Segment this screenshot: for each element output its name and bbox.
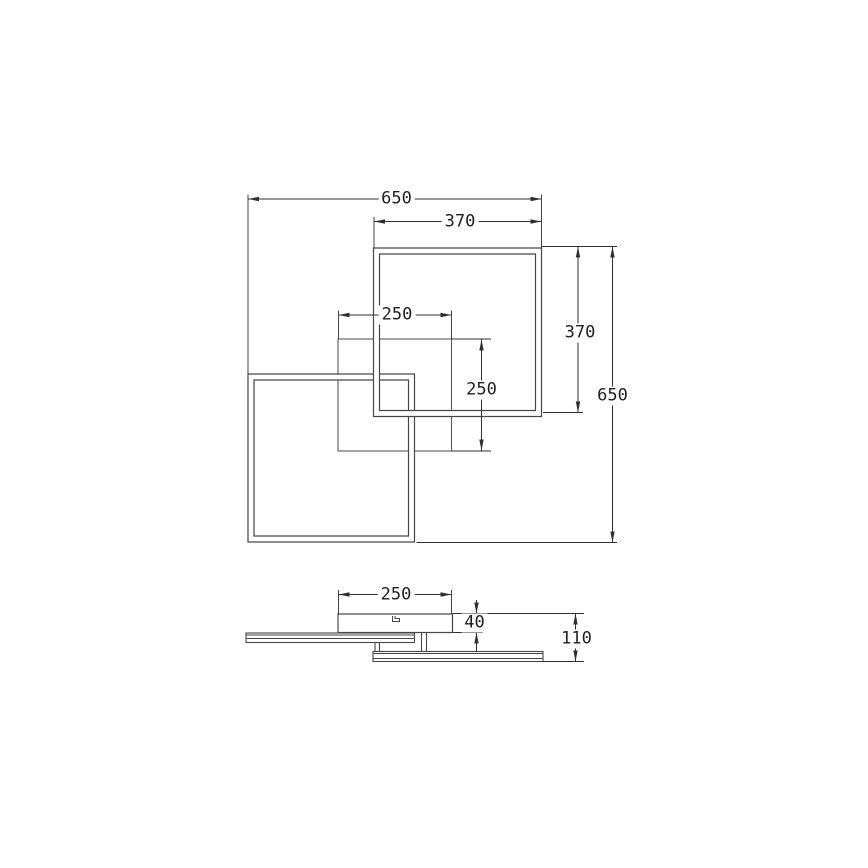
dim-arrow-overall-width: [531, 197, 542, 201]
dim-arrow-canopy-width: [441, 313, 452, 317]
dim-arrow-upper-frame-width: [531, 219, 542, 223]
dim-arrow-upper-frame-depth: [576, 402, 580, 413]
dim-arrow-canopy-depth: [479, 340, 483, 351]
dim-arrow-overall-width: [248, 197, 259, 201]
dim-arrow-upper-frame-depth: [576, 247, 580, 258]
dim-arrow-overall-height: [573, 651, 577, 662]
dim-arrow-canopy-height: [474, 633, 478, 644]
left-frame-profile: [246, 633, 415, 643]
dim-arrow-canopy-width: [339, 313, 350, 317]
dim-arrow-overall-depth: [610, 247, 614, 258]
canopy-outline-250: [338, 339, 452, 451]
technical-drawing-canvas: 650 370 250 250 370 650 250 40 110: [0, 0, 868, 868]
dim-label-upper-frame-width: 370: [442, 212, 479, 231]
dim-label-canopy-depth: 250: [463, 380, 500, 399]
dim-arrow-upper-frame-width: [374, 219, 385, 223]
dim-arrow-canopy-width-side: [441, 592, 452, 596]
right-frame-profile: [373, 652, 543, 662]
dim-label-overall-height: 110: [558, 630, 595, 649]
dim-arrow-canopy-depth: [479, 440, 483, 451]
frame-lower-left: [248, 374, 415, 542]
fixture-dimension-drawing: [0, 0, 868, 868]
dim-label-canopy-width: 250: [379, 306, 416, 325]
stem-center: [422, 633, 427, 652]
stem-left: [375, 643, 380, 652]
dim-label-canopy-width-side: 250: [378, 585, 415, 604]
dim-arrow-canopy-width-side: [339, 592, 350, 596]
dim-label-canopy-height: 40: [461, 613, 487, 632]
dim-label-upper-frame-depth: 370: [562, 323, 599, 342]
dim-arrow-overall-height: [573, 614, 577, 625]
frame-upper-right: [374, 248, 542, 417]
dim-label-overall-depth: 650: [594, 386, 631, 405]
dim-arrow-overall-depth: [610, 532, 614, 543]
dim-label-overall-width: 650: [378, 190, 415, 209]
